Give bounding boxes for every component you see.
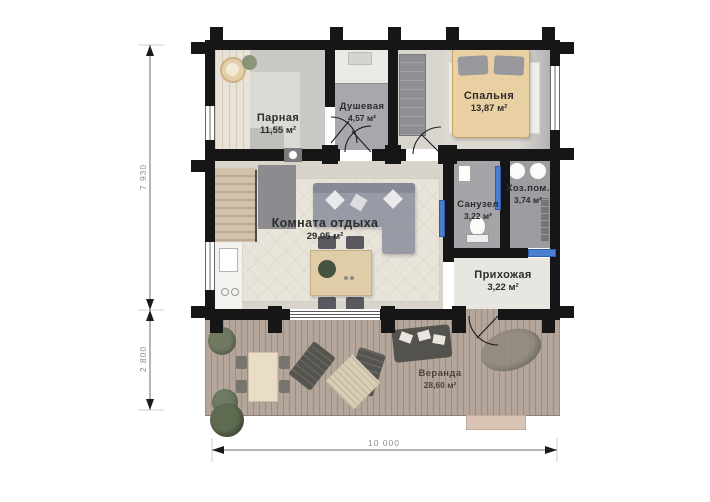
room-area: 28,60 м² [418,380,461,390]
door-entrance [469,316,498,345]
room-area: 13,87 м² [464,103,514,114]
room-label-veranda: Веранда 28,60 м² [418,368,461,390]
room-name: Комната отдыха [272,216,379,230]
room-area: 11,55 м² [257,125,299,136]
door-dushevaya [345,126,371,152]
room-name: Хоз.пом. [506,183,550,194]
room-label-prikhozhaya: Прихожая 3,22 м² [474,269,531,293]
room-area: 3,22 м² [474,282,531,293]
room-label-sanuzel: Санузел 3,22 м² [457,199,499,221]
door-bedroom-hall [413,127,441,154]
room-name: Спальня [464,90,514,102]
stair-treads [215,176,256,240]
room-name: Душевая [340,101,385,112]
room-area: 29,05 м² [272,231,379,242]
room-name: Санузел [457,199,499,210]
room-label-spalnya: Спальня 13,87 м² [464,90,514,114]
dimension-left-top: 7 930 [138,147,148,207]
room-label-dushevaya: Душевая 4,57 м² [340,101,385,123]
room-label-khoz-pom: Хоз.пом. 3,74 м² [506,183,550,205]
annotation-overlay [0,0,710,502]
room-area: 3,22 м² [457,211,499,221]
dimension-left-bottom: 2 800 [138,329,148,389]
room-name: Веранда [418,368,461,379]
dimension-bottom: 10 000 [354,438,414,448]
room-area: 4,57 м² [340,113,385,123]
floor-plan: Парная 11,55 м² Душевая 4,57 м² Спальня … [0,0,710,502]
room-label-parnaya: Парная 11,55 м² [257,112,299,136]
room-name: Прихожая [474,269,531,281]
room-area: 3,74 м² [506,195,550,205]
room-label-komnata-otdykha: Комната отдыха 29,05 м² [272,216,379,242]
room-name: Парная [257,112,299,124]
